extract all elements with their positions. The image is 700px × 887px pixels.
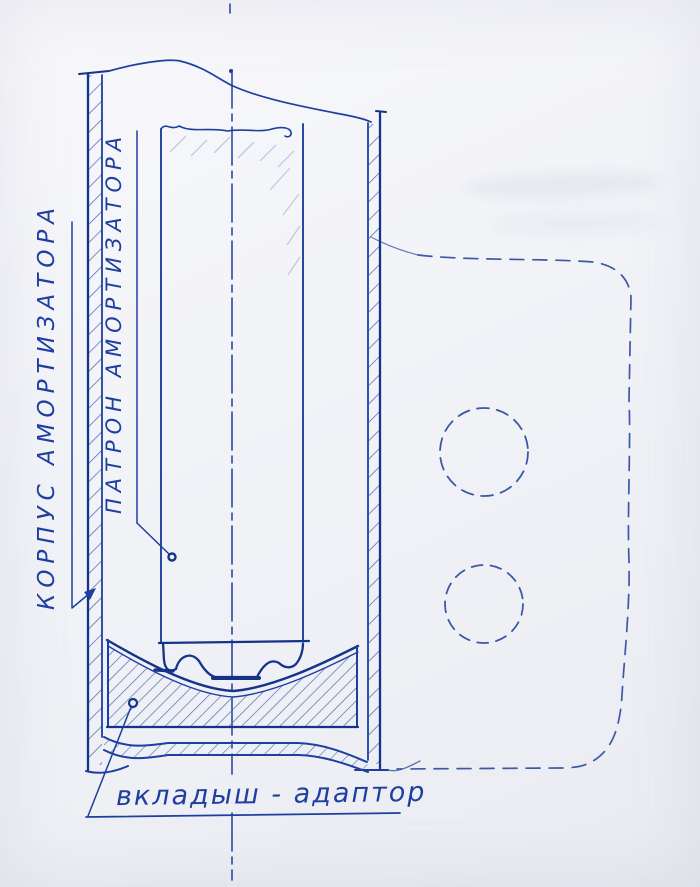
cartridge-shading [170,136,300,275]
label-insert-adapter: вкладыш - адаптор [116,777,427,812]
leader-cartridge-label [137,131,176,561]
phantom-bracket-outline [371,237,631,771]
mount-hole-lower [445,565,523,643]
body-right-wall [355,111,388,770]
label-shock-cartridge: ПАТРОН АМОРТИЗАТОРА [102,131,126,514]
mount-hole-upper [440,408,528,496]
break-line [109,60,371,122]
sketch-canvas: КОРПУС АМОРТИЗАТОРА ПАТРОН АМОРТИЗАТОРА … [0,0,700,887]
label-shock-body: КОРПУС АМОРТИЗАТОРА [34,202,60,610]
body-bottom-closure [104,737,368,772]
